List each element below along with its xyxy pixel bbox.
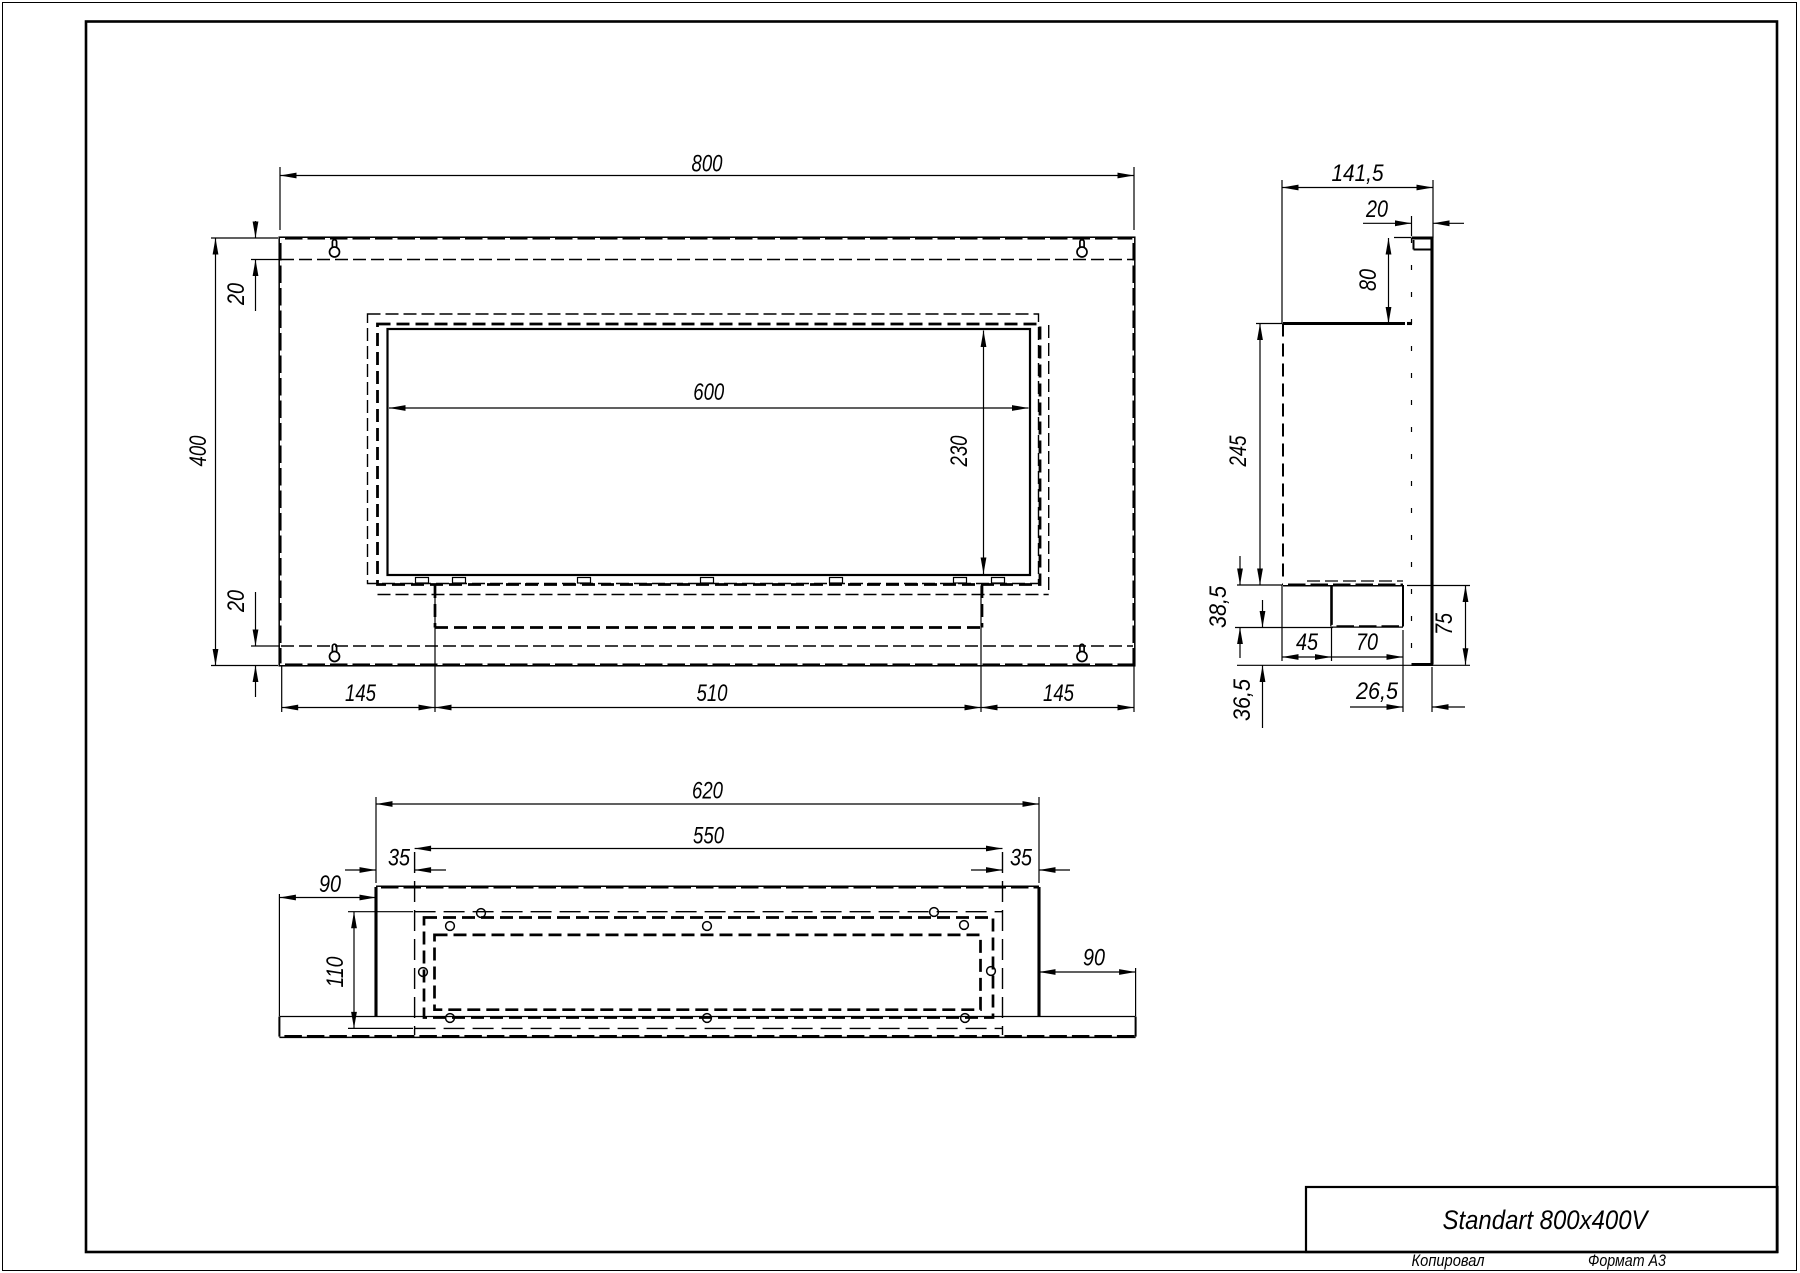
svg-text:36,5: 36,5 — [1229, 678, 1256, 721]
svg-text:20: 20 — [1365, 196, 1388, 223]
svg-text:600: 600 — [693, 379, 725, 406]
svg-text:550: 550 — [693, 823, 725, 850]
svg-text:110: 110 — [322, 956, 349, 988]
svg-text:20: 20 — [223, 589, 250, 612]
svg-text:141,5: 141,5 — [1332, 160, 1385, 187]
svg-text:35: 35 — [388, 845, 411, 872]
svg-text:620: 620 — [692, 778, 724, 805]
svg-text:70: 70 — [1356, 629, 1379, 656]
svg-text:145: 145 — [345, 680, 377, 707]
svg-text:80: 80 — [1355, 268, 1382, 291]
svg-text:45: 45 — [1296, 629, 1319, 656]
svg-text:400: 400 — [185, 435, 212, 467]
svg-text:230: 230 — [946, 435, 973, 467]
svg-text:26,5: 26,5 — [1355, 678, 1398, 705]
svg-text:75: 75 — [1431, 612, 1458, 635]
svg-text:35: 35 — [1010, 845, 1033, 872]
svg-text:Копировал: Копировал — [1412, 1251, 1485, 1270]
svg-text:Формат А3: Формат А3 — [1588, 1251, 1666, 1270]
svg-text:90: 90 — [1083, 945, 1106, 972]
svg-text:145: 145 — [1043, 680, 1075, 707]
svg-text:510: 510 — [697, 680, 729, 707]
svg-text:800: 800 — [692, 151, 724, 178]
svg-text:90: 90 — [319, 871, 342, 898]
svg-text:Standart 800x400V: Standart 800x400V — [1443, 1205, 1651, 1235]
svg-text:20: 20 — [223, 282, 250, 305]
svg-text:38,5: 38,5 — [1205, 585, 1232, 628]
svg-text:245: 245 — [1225, 435, 1252, 467]
